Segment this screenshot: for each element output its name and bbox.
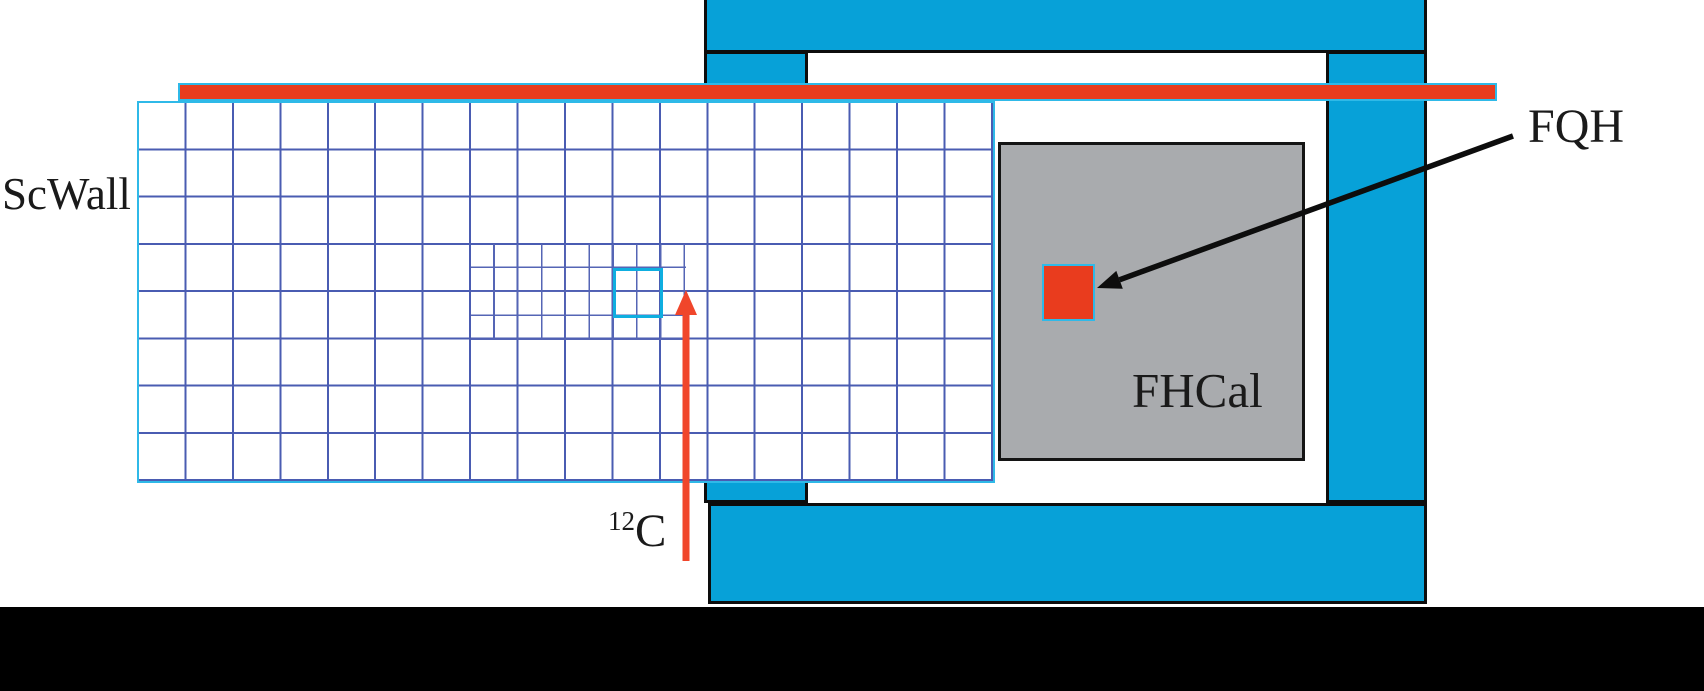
beam-mass-number: 12 [608,506,635,536]
beam-isotope-label: 12C [608,508,666,555]
scwall-highlighted-cell [613,268,663,318]
beam-element-symbol: C [635,505,666,557]
fqh-label: FQH [1528,103,1624,151]
beam-arrow [668,284,704,566]
fqh-pointer-arrow [1088,122,1528,297]
beam-test-setup-diagram: ScWall FHCal FQH 12C [0,0,1704,691]
stand-top-beam [704,0,1427,53]
scwall-label: ScWall [2,172,131,217]
scwall-detector-grid [137,101,995,483]
floor [0,607,1704,691]
stand-bottom-beam [708,503,1427,604]
top-rail [178,83,1497,101]
fhcal-label: FHCal [1132,366,1263,415]
